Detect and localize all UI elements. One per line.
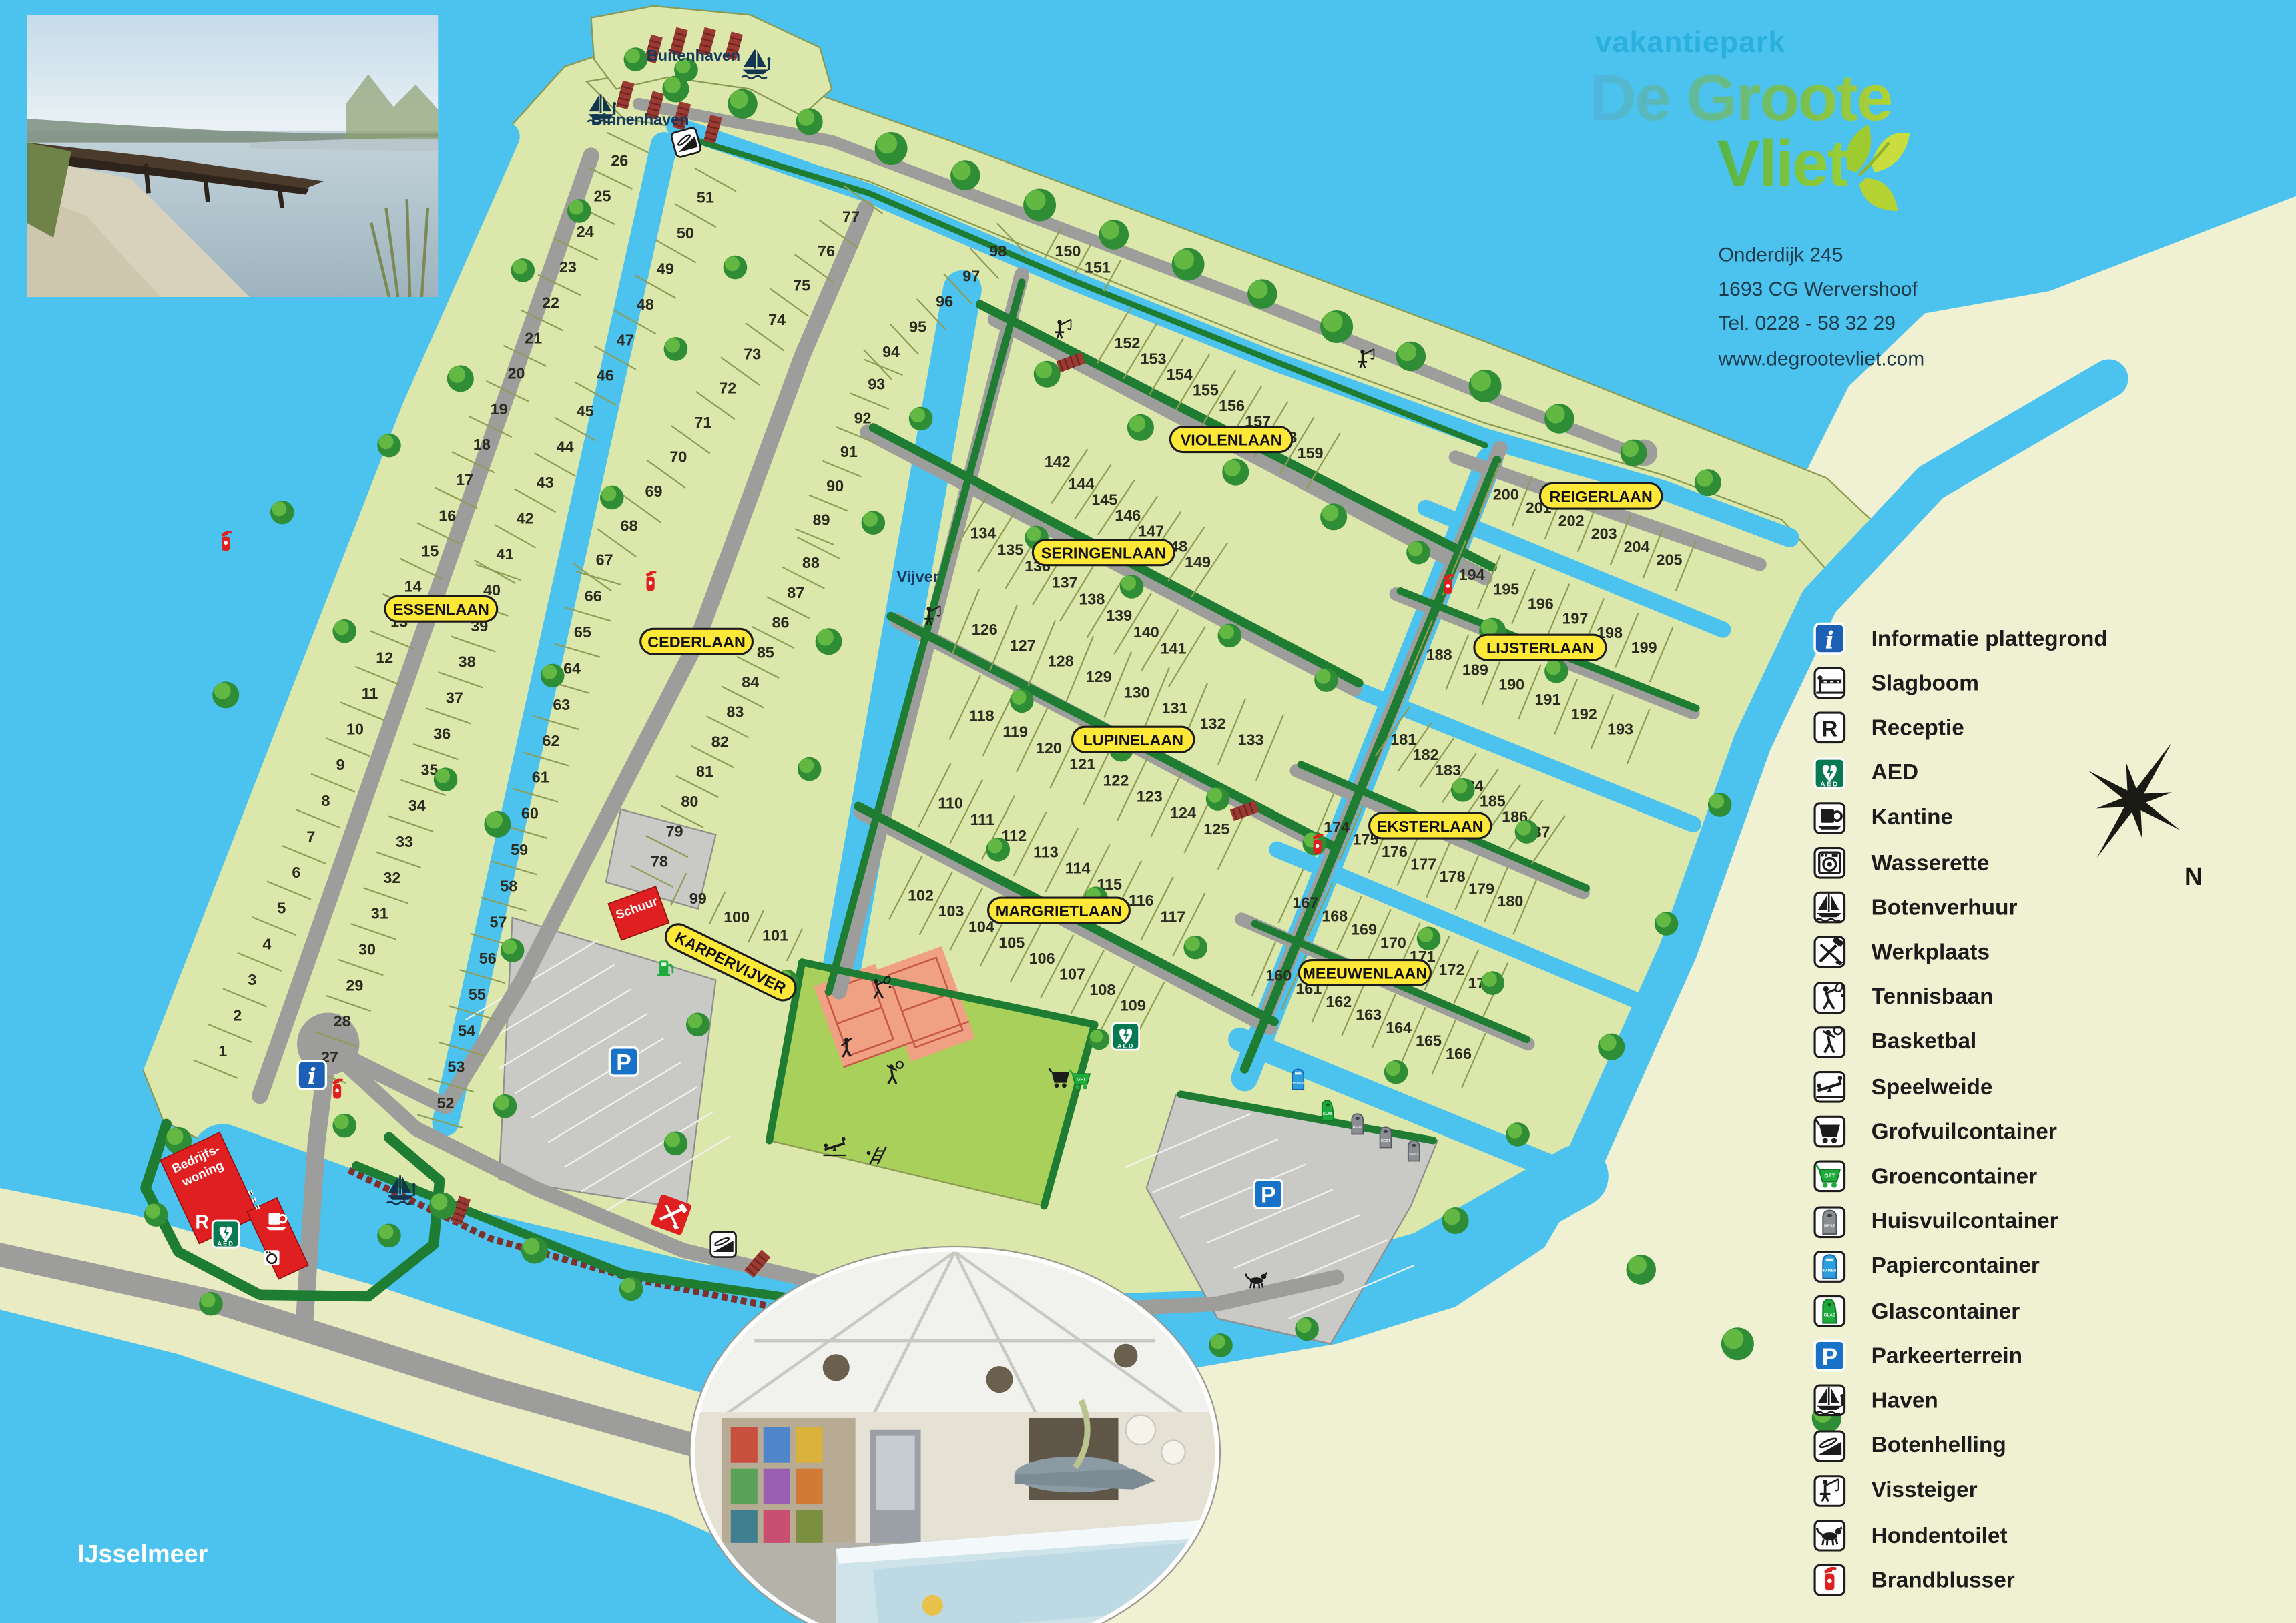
street-label-cederlaan: CEDERLAAN [641,629,753,654]
tree [1034,361,1061,388]
street-label-lupinelaan: LUPINELAAN [1073,727,1194,752]
tree [429,1193,456,1219]
logo-pre: vakantiepark [1595,27,1785,61]
plot-number: 91 [840,443,858,460]
plot-number: 159 [1297,444,1323,462]
plot-number: 118 [969,707,994,724]
plot-number: 10 [346,721,364,738]
water-label-buitenhaven: Buitenhaven [647,47,740,64]
tree [511,258,535,282]
plot-number: 164 [1386,1019,1412,1036]
papier-icon: PAPIER [1813,1250,1846,1283]
plot-number: 196 [1528,595,1554,613]
legend-label: Kantine [1872,805,1953,831]
legend-label: Speelweide [1872,1074,1993,1100]
wasserette-icon [1813,846,1846,879]
plot-number: 193 [1607,720,1633,737]
botenhelling-icon [711,1232,736,1257]
plot-number: 46 [597,367,614,384]
tree [1451,778,1475,802]
plot-number: 90 [826,477,844,495]
vissteiger-icon [1813,1474,1846,1507]
plot-number: 108 [1089,981,1115,998]
tree [619,1277,643,1301]
plot-number: 106 [1029,950,1055,967]
tree [816,628,842,655]
botenhelling-icon [671,127,701,157]
svg-text:SERINGENLAAN: SERINGENLAAN [1041,545,1166,562]
huisvuil-icon: REST [1813,1205,1846,1238]
compass-north-label: N [2185,863,2203,891]
tree [950,160,980,190]
kantine-glyph-icon [266,1213,286,1231]
tree [728,89,758,119]
plot-number: 20 [507,365,525,382]
plot-number: 94 [882,343,900,360]
plot-number: 84 [742,673,759,691]
plot-number: 21 [525,329,542,346]
receptie-icon: R [1813,712,1846,745]
plot-number: 26 [611,152,628,170]
plot-number: 25 [594,188,611,205]
tree [1417,926,1441,950]
plot-number: 119 [1002,723,1028,741]
tree [664,1132,688,1156]
svg-text:LIJSTERLAAN: LIJSTERLAAN [1486,639,1594,657]
legend-label: Grofvuilcontainer [1872,1119,2057,1145]
tree [501,938,525,962]
legend-label: Slagboom [1872,671,1979,696]
plot-number: 77 [842,208,860,226]
plot-number: 64 [563,660,581,677]
plot-number: 202 [1558,512,1585,529]
plot-number: 183 [1435,761,1461,779]
tree [1544,659,1568,683]
tree [1626,1255,1656,1285]
plot-number: 14 [404,578,422,595]
plot-number: 190 [1498,676,1524,693]
legend-item-slagboom: Slagboom [1813,664,1979,703]
tree [1469,370,1502,402]
plot-number: 167 [1292,894,1318,912]
plot-number: 130 [1124,684,1150,701]
street-label-margrietlaan: MARGRIETLAAN [988,898,1130,923]
plot-number: 142 [1045,453,1071,470]
svg-text:GFT: GFT [1077,1078,1086,1082]
plot-number: 73 [744,345,761,362]
tree [1314,668,1338,692]
plot-number: 162 [1326,993,1352,1010]
plot-number: 16 [439,507,456,524]
plot-number: 107 [1059,965,1085,982]
papier-icon: PAPIER [1292,1070,1304,1090]
tree [493,1094,517,1118]
glas-icon: GLAS [1813,1295,1846,1327]
legend-label: Botenverhuur [1872,895,2018,920]
plot-number: 93 [868,376,885,393]
plot-number: 152 [1114,334,1140,352]
plot-number: 203 [1591,525,1617,542]
plot-number: 81 [696,763,713,780]
street-label-violenlaan: VIOLENLAAN [1170,427,1291,452]
plot-number: 89 [812,511,830,529]
tree [796,108,823,135]
botenverhuur-icon [1813,891,1846,924]
plot-number: 110 [938,795,963,812]
tree [600,486,624,510]
plot-number: 169 [1351,921,1377,938]
aed-icon: AED [212,1221,239,1247]
street-label-eksterlaan: EKSTERLAAN [1370,813,1491,838]
svg-text:R: R [1821,718,1837,743]
plot-number: 182 [1413,746,1439,763]
tree [1320,310,1353,343]
plot-number: 180 [1497,892,1523,910]
svg-text:PAPIER: PAPIER [1292,1081,1304,1084]
plot-number: 191 [1535,691,1561,708]
legend-item-speel: Speelweide [1813,1068,1993,1106]
plot-number: 78 [651,852,668,870]
tree [798,757,822,781]
tree [541,664,565,688]
tree [875,132,908,165]
receptie-r-icon: R [195,1211,208,1233]
plot-number: 9 [336,756,344,773]
svg-text:MEEUWENLAAN: MEEUWENLAAN [1302,964,1427,982]
plot-number: 170 [1380,934,1406,952]
plot-number: 36 [433,725,451,742]
svg-text:i: i [308,1063,316,1090]
plot-number: 53 [447,1058,465,1076]
svg-text:VIOLENLAAN: VIOLENLAAN [1181,432,1282,449]
plot-number: 102 [908,887,934,904]
logo-leaf-icon [1839,113,1916,217]
plot-number: 17 [456,471,473,489]
parkeer-icon: P [609,1048,637,1076]
plot-number: 125 [1203,820,1229,838]
svg-text:EKSTERLAAN: EKSTERLAAN [1377,818,1484,835]
glas-icon: GLAS [1322,1100,1334,1120]
plot-number: 69 [645,482,662,500]
plot-number: 96 [936,292,953,310]
plot-number: 63 [553,696,570,713]
plot-number: 151 [1085,258,1111,276]
plot-number: 4 [262,935,271,952]
plot-number: 92 [854,409,872,426]
plot-number: 24 [577,223,594,240]
plot-number: 74 [768,311,786,328]
tree [1247,279,1277,309]
plot-number: 42 [517,509,534,527]
plot-number: 58 [500,877,517,894]
plot-number: 121 [1069,755,1095,773]
plot-number: 178 [1440,868,1466,885]
tree [1721,1327,1754,1360]
legend-label: Vissteiger [1872,1478,1978,1504]
plot-number: 197 [1562,609,1588,627]
plot-number: 15 [421,543,439,560]
water-label-vijver: Vijver [897,568,939,585]
tree [567,199,591,223]
plot-number: 54 [458,1022,475,1039]
grofvuil-icon [1813,1115,1846,1148]
plot-number: 51 [697,189,714,206]
plot-number: 138 [1079,590,1105,607]
plot-number: 160 [1265,967,1291,984]
tree [1209,1333,1233,1357]
plot-number: 100 [724,908,750,926]
svg-text:i: i [1825,627,1835,654]
plot-number: 122 [1103,771,1129,789]
tree [1206,787,1230,811]
tree [624,47,648,71]
info-icon: i [1813,622,1846,655]
legend-item-kantine: Kantine [1813,799,1953,838]
plot-number: 117 [1161,908,1186,925]
plot-number: 1 [218,1042,227,1060]
tennis-icon [1813,981,1846,1014]
plot-number: 132 [1200,715,1226,733]
tree [1023,189,1056,222]
park-map-page: 1234567891011121314151617181920212223242… [0,0,2296,1623]
tree [1295,1317,1319,1341]
plot-number: 134 [970,525,996,542]
plot-number: 5 [277,900,286,917]
plot-number: 66 [585,587,602,605]
plot-number: 124 [1170,804,1196,822]
address-line4: www.degrootevliet.com [1718,341,1924,376]
aed-icon: AED [1813,757,1846,789]
plot-number: 194 [1459,566,1485,583]
plot-number: 41 [497,545,514,563]
tree [1621,440,1647,466]
plot-number: 204 [1624,538,1650,555]
legend-label: Informatie plattegrond [1872,626,2108,651]
lake-photo-art [27,15,438,297]
plot-number: 129 [1086,668,1112,685]
legend-label: Brandblusser [1872,1568,2015,1593]
plot-number: 123 [1137,788,1163,805]
plot-number: 181 [1390,731,1416,748]
plot-number: 200 [1493,486,1519,503]
plot-number: 12 [376,649,393,666]
plot-number: 116 [1129,892,1154,909]
tree [199,1292,223,1316]
plot-number: 71 [694,414,711,431]
tree [1218,624,1242,648]
street-label-reigerlaan: REIGERLAAN [1540,483,1661,509]
plot-number: 104 [968,918,994,936]
legend-item-glas: GLAS Glascontainer [1813,1292,2020,1331]
tree [1695,469,1721,496]
plot-number: 128 [1048,652,1074,669]
plot-number: 127 [1010,637,1036,654]
tree [862,511,886,535]
werkplaats-icon [1813,936,1846,969]
plot-number: 28 [334,1012,351,1030]
water-label-ijsselmeer: IJsselmeer [77,1540,208,1568]
plot-number: 149 [1185,553,1211,571]
legend-item-vissteiger: Vissteiger [1813,1472,1978,1510]
tree [377,434,401,458]
svg-text:AED: AED [1117,1042,1134,1049]
plot-number: 19 [491,400,508,418]
legend-item-groen: GFT Groencontainer [1813,1157,2037,1196]
plot-number: 56 [479,950,497,967]
plot-number: 31 [371,905,388,922]
tree [1120,575,1144,599]
tree [986,838,1010,862]
plot-number: 47 [617,331,634,348]
hondentoilet-icon [1813,1519,1846,1552]
tree [1708,793,1732,817]
botenhelling-icon [1813,1429,1846,1462]
legend-label: Haven [1872,1388,1938,1413]
legend-item-wasserette: Wasserette [1813,844,1990,882]
plot-number: 205 [1657,551,1683,569]
plot-number: 189 [1462,661,1488,678]
brandblusser-icon [1813,1564,1846,1596]
groen-icon: GFT [1813,1161,1846,1193]
tree [484,811,511,838]
plot-number: 155 [1193,382,1219,399]
plot-number: 85 [757,643,774,661]
plot-number: 150 [1055,242,1081,260]
plot-number: 79 [666,823,683,840]
svg-text:LUPINELAAN: LUPINELAAN [1083,731,1183,749]
plot-number: 179 [1468,880,1494,898]
plot-number: 185 [1480,792,1506,809]
parkeer-icon: P [1813,1339,1846,1372]
address-line3: Tel. 0228 - 58 32 29 [1718,306,1924,341]
plot-number: 82 [711,733,729,750]
plot-number: 131 [1162,699,1188,717]
address-line1: Onderdijk 245 [1718,238,1924,272]
plot-number: 126 [972,621,998,638]
plot-number: 3 [248,971,256,988]
plot-number: 48 [637,296,654,313]
plot-number: 6 [292,864,300,881]
tree [332,619,356,643]
plot-number: 147 [1138,522,1164,539]
street-label-seringenlaan: SERINGENLAAN [1033,540,1174,565]
legend-label: Huisvuilcontainer [1872,1209,2058,1234]
plot-number: 32 [383,869,400,886]
plot-number: 168 [1322,908,1348,925]
plot-number: 109 [1120,997,1146,1014]
tree [1127,414,1154,441]
parkeer-icon: P [1254,1180,1282,1208]
plot-number: 195 [1493,581,1519,598]
tree [1544,404,1574,434]
legend-item-basket: Basketbal [1813,1023,1976,1062]
svg-text:PAPIER: PAPIER [1823,1269,1837,1273]
tree [1099,220,1129,250]
tree [1089,1029,1109,1050]
plot-number: 22 [542,294,559,311]
plot-number: 103 [938,902,964,920]
plot-number: 67 [596,551,613,569]
svg-text:REST: REST [1409,1153,1419,1157]
svg-text:AED: AED [1820,781,1839,788]
plot-number: 52 [437,1094,455,1112]
plot-number: 153 [1141,350,1167,367]
svg-text:CEDERLAAN: CEDERLAAN [647,633,746,651]
tree [447,365,474,392]
legend-item-grofvuil: Grofvuilcontainer [1813,1112,2057,1151]
slagboom-icon [1813,667,1846,699]
legend-item-werkplaats: Werkplaats [1813,933,1990,972]
plot-number: 174 [1324,818,1350,836]
plot-number: 37 [446,689,463,707]
legend-label: Receptie [1872,715,1964,741]
plot-number: 97 [962,268,980,285]
plot-number: 111 [970,811,994,828]
plot-number: 133 [1237,731,1263,748]
legend-label: Botenhelling [1872,1433,2006,1458]
plot-number: 177 [1410,856,1436,873]
plot-number: 29 [346,976,363,994]
plot-number: 49 [657,260,674,278]
legend-item-info: i Informatie plattegrond [1813,619,2108,658]
plot-number: 33 [396,833,413,850]
svg-text:GLAS: GLAS [1824,1313,1835,1317]
plot-number: 135 [997,541,1023,558]
plot-number: 2 [233,1007,242,1024]
plot-number: 166 [1446,1045,1472,1062]
tree [1222,459,1249,486]
plot-number: 144 [1068,475,1094,493]
legend-item-botenhelling: Botenhelling [1813,1426,2006,1465]
svg-text:MARGRIETLAAN: MARGRIETLAAN [996,902,1122,920]
svg-text:ESSENLAAN: ESSENLAAN [393,601,489,618]
legend-item-huisvuil: REST Huisvuilcontainer [1813,1202,2058,1241]
legend-item-receptie: R Receptie [1813,709,1964,747]
svg-text:R: R [195,1211,208,1233]
svg-text:P: P [1821,1343,1837,1370]
lake-photo [27,15,438,297]
tree [1396,342,1426,372]
plot-number: 95 [909,318,926,335]
tree [521,1237,548,1264]
plot-number: 65 [574,623,591,641]
plot-number: 188 [1426,646,1452,663]
tree [212,681,239,708]
legend-label: Parkeerterrein [1872,1343,2022,1369]
huisvuil-icon: REST [1352,1114,1363,1134]
plot-number: 139 [1106,607,1132,624]
svg-text:GLAS: GLAS [1323,1112,1333,1116]
legend-label: Hondentoilet [1872,1523,2008,1548]
haven-icon [1813,1385,1846,1417]
tree [1172,248,1205,281]
plot-number: 76 [818,242,835,260]
plot-number: 57 [490,914,507,931]
plot-number: 43 [537,474,554,491]
plot-number: 59 [511,841,528,858]
plot-number: 72 [719,380,736,397]
plot-number: 18 [473,436,491,453]
svg-text:AED: AED [217,1240,234,1247]
svg-text:REST: REST [1381,1139,1391,1143]
basket-icon [1813,1026,1846,1058]
street-label-lijsterlaan: LIJSTERLAAN [1474,635,1606,660]
legend-label: Werkplaats [1872,940,1990,965]
plot-number: 7 [306,828,315,845]
tree [1320,503,1347,530]
svg-text:REST: REST [1824,1223,1835,1228]
info-icon: i [298,1061,326,1090]
